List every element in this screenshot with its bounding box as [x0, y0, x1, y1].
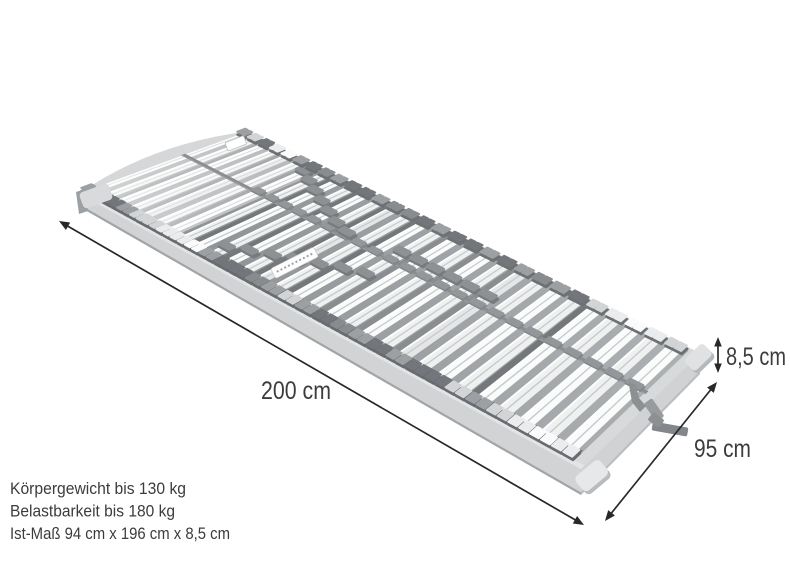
svg-text:95 cm: 95 cm: [694, 435, 751, 463]
svg-text:8,5 cm: 8,5 cm: [726, 343, 786, 371]
svg-text:Ist-Maß 94 cm x 196 cm x 8,5 c: Ist-Maß 94 cm x 196 cm x 8,5 cm: [10, 524, 230, 543]
svg-text:Körpergewicht bis 130 kg: Körpergewicht bis 130 kg: [10, 479, 186, 498]
svg-text:200 cm: 200 cm: [261, 377, 331, 405]
svg-text:Belastbarkeit bis 180 kg: Belastbarkeit bis 180 kg: [10, 502, 175, 521]
